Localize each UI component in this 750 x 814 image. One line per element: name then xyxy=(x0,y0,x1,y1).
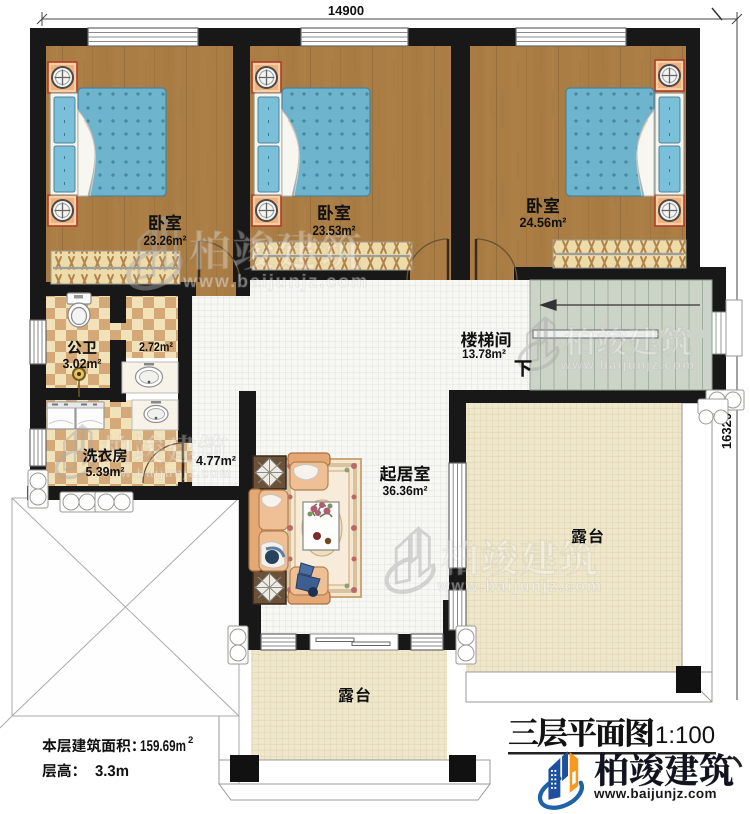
svg-text:3.3m: 3.3m xyxy=(95,763,129,780)
svg-text:36.36m²: 36.36m² xyxy=(383,483,429,498)
svg-text:24.56m²: 24.56m² xyxy=(520,215,567,230)
svg-text:www.baijunjz.com: www.baijunjz.com xyxy=(593,786,717,801)
svg-text:1:100: 1:100 xyxy=(655,722,715,749)
svg-text:2.72m²: 2.72m² xyxy=(139,340,173,354)
svg-text:4.77m²: 4.77m² xyxy=(196,453,237,468)
svg-text:14900: 14900 xyxy=(328,3,364,18)
svg-text:3.02m²: 3.02m² xyxy=(63,356,103,371)
svg-text:www.baijunjz.com: www.baijunjz.com xyxy=(182,271,369,291)
svg-text:www.baijunjz.com: www.baijunjz.com xyxy=(560,357,696,372)
svg-text:23.26m²: 23.26m² xyxy=(144,233,187,248)
svg-text:www.baijunjz.com: www.baijunjz.com xyxy=(436,578,602,595)
svg-text:13.78m²: 13.78m² xyxy=(462,347,506,361)
svg-text:23.53m²: 23.53m² xyxy=(313,223,356,238)
svg-text:159.69m: 159.69m xyxy=(140,738,186,755)
svg-text:2: 2 xyxy=(188,735,193,746)
svg-text:5.39m²: 5.39m² xyxy=(86,464,126,479)
